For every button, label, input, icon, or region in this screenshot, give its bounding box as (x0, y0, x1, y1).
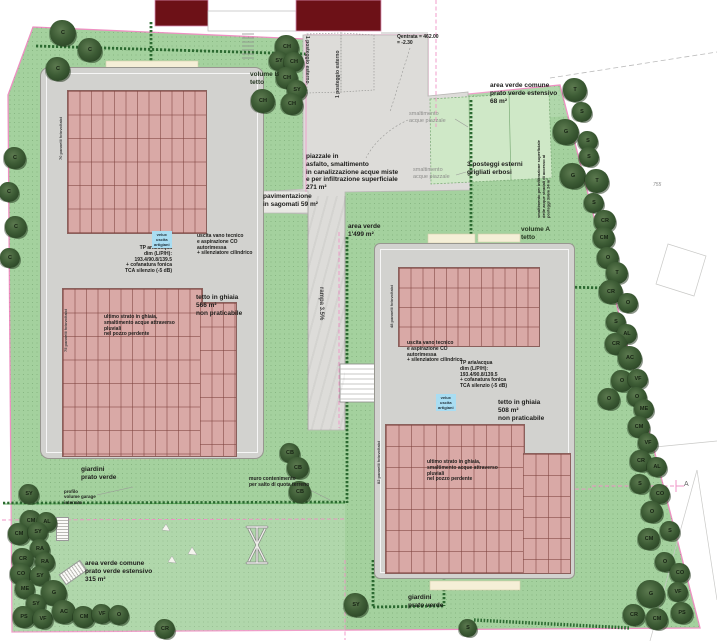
tree-g: G (637, 580, 665, 608)
tree-o: O (641, 501, 663, 523)
tree-cr: CR (155, 619, 175, 639)
tree-o: O (109, 605, 129, 625)
tree-ps: PS (13, 606, 35, 628)
tree-s: S (572, 102, 592, 122)
tree-cm: CM (646, 608, 668, 630)
label-volume-b: volume B tetto (250, 71, 279, 87)
tree-cr: CR (623, 604, 645, 626)
label-giardini-right: giardini prato verde (408, 594, 443, 610)
label-tp-b: TP aria/acqua dim (L/P/H): 193.4/90.8/13… (118, 246, 172, 275)
tree-al: AL (647, 457, 667, 477)
label-piazzale: piazzale in asfalto, smaltimento in cana… (306, 153, 398, 192)
tree-t: T (563, 78, 587, 102)
label-smaltimento-1: smaltimento acque piazzale (409, 111, 446, 124)
existing-building-left (155, 0, 208, 26)
tree-c: C (50, 20, 76, 46)
existing-building-right (296, 0, 381, 31)
label-posteggio-1: 1 posteggio esterno (303, 36, 309, 94)
tree-sy: SY (19, 484, 39, 504)
stairs (340, 364, 376, 402)
tree-cm: CM (593, 227, 615, 249)
label-posteggio-2: 1 posteggio esterno (336, 40, 342, 98)
bench (56, 517, 69, 541)
tree-co: CO (670, 563, 690, 583)
solar-array-a-bottom (385, 424, 525, 574)
label-velux-b: velux uscita artigiani (152, 231, 172, 248)
section-marker-a: A (684, 481, 689, 489)
tree-cm: CM (8, 523, 30, 545)
label-pannelli-82: 82 pannelli fotovoltaici (377, 424, 382, 484)
tree-s: S (459, 619, 477, 637)
label-area-315: area verde comune prato verde estensivo … (85, 560, 152, 583)
tree-c: C (46, 57, 70, 81)
tree-c: C (0, 248, 20, 268)
label-pavimentazione: pavimentazione in sagomati 59 m² (263, 193, 318, 209)
tree-c: C (78, 38, 102, 62)
tree-c: C (5, 216, 27, 238)
tree-c: C (0, 182, 19, 202)
tree-s: S (630, 474, 650, 494)
solar-array-b-top (67, 90, 207, 234)
tree-ch: CH (251, 89, 275, 113)
label-smaltimento-2: smaltimento acque piazzale (413, 167, 450, 180)
tree-sy: SY (344, 593, 368, 617)
label-quota-755: 755 (653, 182, 661, 188)
label-area-verde-1499: area verde 1'499 m² (348, 223, 381, 239)
label-posteggi-3: 3 posteggi esterni grigliati erbosi (467, 161, 523, 177)
label-q-entrata: Qentrata = 462.00 = -2.30 (397, 35, 439, 47)
tree-vf: VF (628, 369, 648, 389)
label-uscita-vano-a: uscita vano tecnico e aspirazione CO aut… (407, 341, 462, 364)
label-velux-a: velux uscita artigiani (436, 394, 456, 411)
label-tp-a: TP aria/acqua dim (L/P/H): 193.4/90.8/13… (460, 361, 507, 390)
label-tetto-508: tetto in ghiaia 508 m² non praticabile (498, 399, 544, 422)
tree-vf: VF (668, 582, 688, 602)
tree-o: O (598, 388, 620, 410)
tree-c: C (4, 147, 26, 169)
label-pannelli-75: 75 pannelli fotovoltaici (64, 290, 69, 352)
tree-g: G (560, 163, 586, 189)
label-rampa: rampa 3.5% (317, 287, 324, 351)
label-ultimo-strato-b: ultimo strato in ghiaia, smaltimento acq… (104, 315, 175, 338)
tree-o: O (618, 293, 638, 313)
tree-ac: AC (618, 346, 642, 370)
tree-t: T (585, 169, 609, 193)
label-muro-contenimento: muro contenimento per salto di quota ter… (249, 477, 309, 489)
label-volume-a: volume A tetto (521, 226, 550, 242)
label-giardini-left: giardini prato verde (81, 466, 116, 482)
tree-ps: PS (671, 602, 693, 624)
solar-array-a-top (398, 267, 540, 347)
label-profilo-garage: profilo volume garage interrato (64, 489, 96, 505)
tree-cm: CM (638, 528, 660, 550)
label-pannelli-48: 48 pannelli fotovoltaici (390, 268, 395, 328)
solar-array-b-bottom-ext (200, 302, 237, 457)
label-ultimo-strato-a: ultimo strato in ghiaia, smaltimento acq… (427, 460, 498, 483)
tree-vf: VF (33, 609, 53, 629)
ramp (308, 196, 345, 430)
site-plan: 1 posteggio esterno 1 posteggio esterno … (0, 0, 717, 641)
label-uscita-vano-b: uscita vano tecnico e aspirazione CO aut… (197, 234, 252, 257)
tree-ch: CH (281, 93, 303, 115)
tree-s: S (579, 147, 599, 167)
label-pannelli-70: 70 pannelli fotovoltaici (59, 94, 64, 160)
solar-array-a-bottom-ext (523, 453, 571, 574)
tree-g: G (553, 119, 579, 145)
label-tetto-566: tetto in ghiaia 566 m² non praticabile (196, 294, 242, 317)
tree-s: S (660, 521, 680, 541)
label-infiltrazione: smaltimento per infiltrazione superficia… (537, 98, 551, 218)
